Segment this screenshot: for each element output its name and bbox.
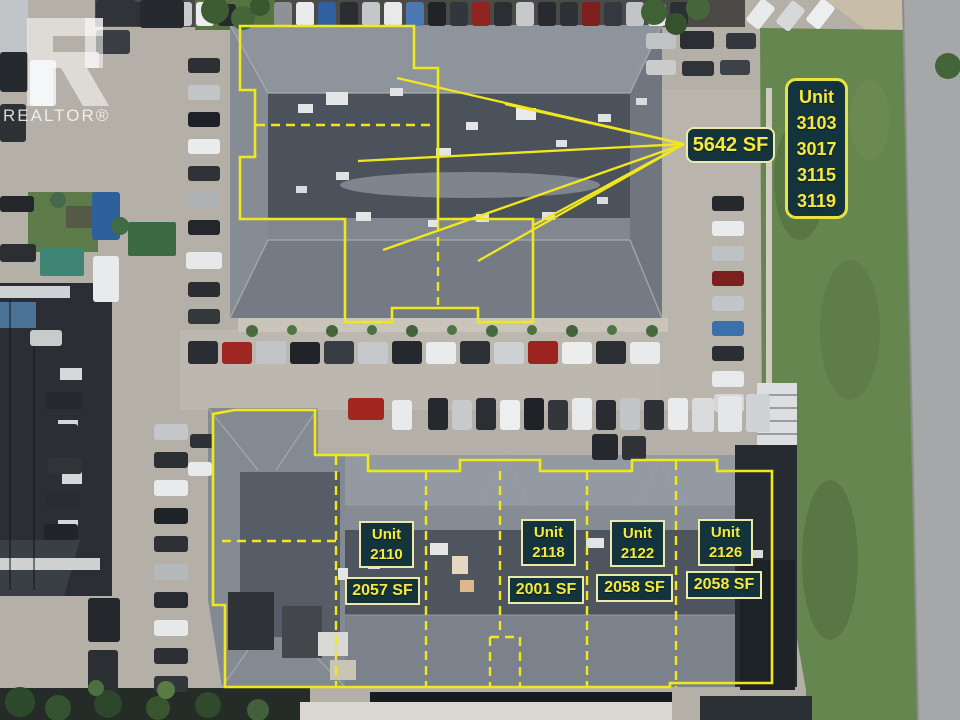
car: [746, 394, 770, 432]
car: [592, 434, 618, 460]
rooftop-unit: [598, 114, 611, 122]
car: [188, 220, 220, 235]
car: [516, 2, 534, 26]
tree: [665, 13, 687, 35]
rooftop-unit: [296, 186, 307, 193]
car: [154, 536, 188, 552]
car: [582, 2, 600, 26]
car: [596, 341, 626, 364]
car: [392, 341, 422, 364]
unit-2118-sf: 2001 SF: [508, 576, 584, 604]
car: [96, 30, 130, 54]
car: [620, 398, 640, 430]
car: [324, 341, 354, 364]
car: [596, 400, 616, 430]
unit-2122-label: Unit 2122: [610, 520, 665, 567]
car: [154, 452, 188, 468]
car: [494, 2, 512, 26]
rooftop-unit: [430, 543, 448, 555]
unit-2126-sf: 2058 SF: [686, 571, 762, 599]
car: [154, 648, 188, 664]
unit-2126-label: Unit 2126: [698, 519, 753, 566]
car: [290, 342, 320, 364]
total-sf-callout: 5642 SF: [686, 127, 775, 163]
car: [472, 2, 490, 26]
car: [712, 321, 744, 336]
car: [452, 400, 472, 430]
car: [460, 341, 490, 364]
rooftop-unit: [390, 88, 403, 96]
car: [188, 85, 220, 100]
car: [392, 400, 412, 430]
car: [154, 480, 188, 496]
panel-line: 3103: [796, 110, 836, 136]
car: [538, 2, 556, 26]
car: [426, 342, 456, 364]
tree: [935, 53, 960, 79]
car: [190, 434, 214, 448]
car: [188, 139, 220, 154]
car: [0, 244, 36, 262]
car: [720, 60, 750, 75]
tree: [88, 680, 104, 696]
car: [358, 342, 388, 364]
bush: [367, 325, 377, 335]
car: [44, 424, 78, 440]
car: [154, 508, 188, 524]
bush: [527, 325, 537, 335]
bush: [486, 325, 498, 337]
car: [622, 436, 646, 460]
neighbor-roof-bottom: [300, 702, 672, 720]
car: [188, 193, 220, 208]
car: [318, 2, 336, 26]
car: [44, 524, 78, 540]
car: [30, 330, 62, 346]
panel-line: 3119: [797, 188, 836, 214]
rooftop-unit: [752, 550, 763, 558]
car: [692, 398, 714, 432]
car: [712, 296, 744, 311]
car: [222, 342, 252, 364]
car: [46, 492, 80, 508]
rooftop-unit: [586, 538, 604, 548]
aerial-listing-photo: REALTOR® 5642 SF Unit 3103 3017 3115 311…: [0, 0, 960, 720]
car: [428, 398, 448, 430]
car: [186, 252, 222, 269]
car: [428, 2, 446, 26]
car: [712, 246, 744, 261]
car: [680, 31, 714, 49]
rooftop-unit: [556, 140, 567, 147]
car: [188, 112, 220, 127]
car: [712, 221, 744, 236]
car: [274, 2, 292, 26]
car: [384, 2, 402, 26]
rooftop-unit: [460, 580, 474, 592]
panel-line: 3115: [797, 162, 836, 188]
bush: [406, 325, 418, 337]
bush: [566, 325, 578, 337]
car: [154, 424, 188, 440]
car: [154, 592, 188, 608]
car: [188, 341, 218, 364]
unit-2110-sf: 2057 SF: [345, 577, 420, 605]
rooftop-unit: [597, 197, 608, 204]
car: [476, 398, 496, 430]
car: [630, 342, 660, 364]
car: [188, 58, 220, 73]
car: [646, 60, 676, 75]
car: [188, 462, 212, 476]
unit-2118-label: Unit 2118: [521, 519, 576, 566]
panel-line: 3017: [796, 136, 836, 162]
bush: [246, 325, 258, 337]
tree: [111, 217, 129, 235]
car: [712, 196, 744, 211]
car: [88, 598, 120, 642]
rooftop-unit: [452, 556, 468, 574]
car: [96, 0, 136, 26]
rooftop-unit: [336, 172, 349, 180]
car: [154, 564, 188, 580]
tree: [50, 192, 66, 208]
tree: [247, 699, 269, 720]
bush: [646, 325, 658, 337]
car: [46, 392, 82, 409]
unit-2110-label: Unit 2110: [359, 521, 414, 568]
car: [646, 33, 676, 49]
car: [548, 400, 568, 430]
total-sf-value: 5642 SF: [693, 134, 769, 157]
car: [644, 400, 664, 430]
car: [712, 346, 744, 361]
car: [494, 342, 524, 364]
car: [48, 458, 82, 474]
tree: [157, 681, 175, 699]
bush: [447, 325, 457, 335]
top-building-roof: [230, 25, 662, 318]
car: [362, 2, 380, 26]
rooftop-unit: [298, 104, 313, 113]
car: [340, 2, 358, 26]
car: [500, 400, 520, 430]
car: [406, 2, 424, 26]
tree: [146, 696, 170, 720]
car: [524, 398, 544, 430]
car: [0, 196, 34, 212]
car: [682, 61, 714, 76]
car: [712, 271, 744, 286]
bush: [287, 325, 297, 335]
car: [572, 398, 592, 430]
car: [188, 282, 220, 297]
car: [726, 33, 756, 49]
bush: [326, 325, 338, 337]
car: [154, 620, 188, 636]
car: [188, 309, 220, 324]
panel-line: Unit: [799, 84, 834, 110]
rooftop-unit: [326, 92, 348, 105]
car: [560, 2, 578, 26]
car: [30, 60, 56, 106]
upper-units-panel: Unit 3103 3017 3115 3119: [785, 78, 848, 219]
tree: [45, 695, 71, 720]
car: [0, 104, 26, 142]
car: [93, 256, 119, 302]
rooftop-unit: [466, 122, 478, 130]
rooftop-unit: [636, 98, 647, 105]
bush: [607, 325, 617, 335]
car: [450, 2, 468, 26]
car: [188, 166, 220, 181]
unit-2122-sf: 2058 SF: [596, 574, 673, 602]
tree: [641, 0, 667, 25]
tree: [5, 687, 35, 717]
car: [528, 341, 558, 364]
car: [140, 0, 184, 28]
car: [296, 2, 314, 26]
tree: [195, 692, 221, 718]
car: [562, 342, 592, 364]
car: [668, 398, 688, 430]
car: [718, 396, 742, 432]
car: [256, 341, 286, 364]
car: [0, 52, 28, 92]
car: [604, 2, 622, 26]
car: [712, 371, 744, 387]
rooftop-unit: [356, 212, 371, 221]
car: [348, 398, 384, 420]
